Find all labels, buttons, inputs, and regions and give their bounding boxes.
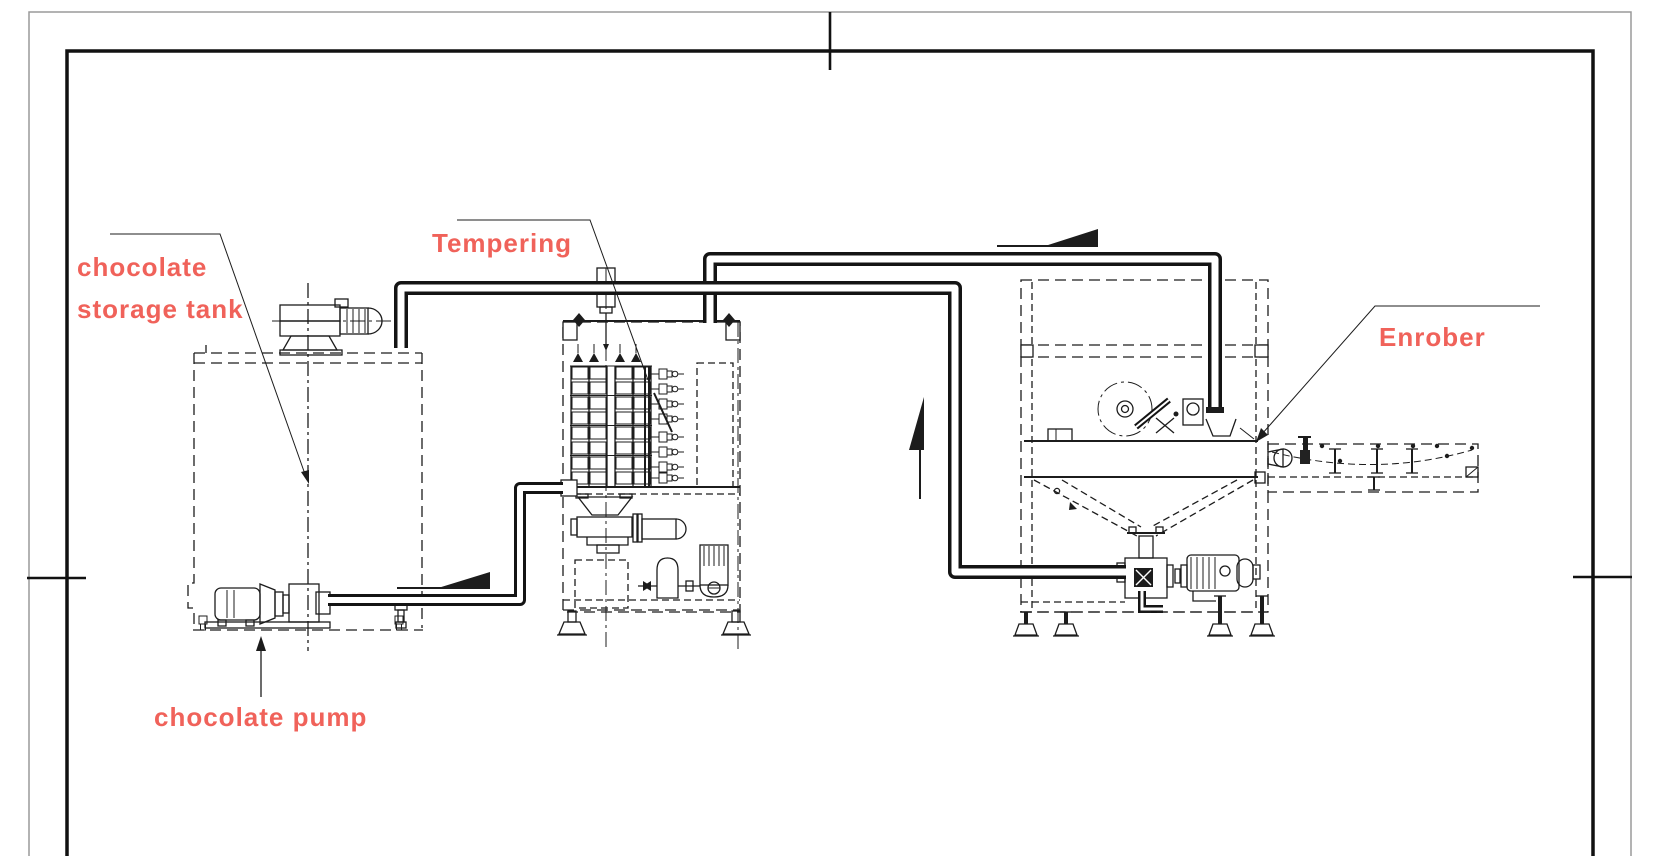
belt-dot bbox=[1376, 444, 1380, 448]
plate-cell bbox=[616, 382, 632, 394]
pipe-return-enrober-to-tank bbox=[401, 288, 1126, 572]
enrober-motor-ribs bbox=[1191, 557, 1215, 589]
labels: chocolate storage tank Tempering Enrober… bbox=[77, 228, 1486, 732]
discharge-pipe-cap bbox=[1206, 407, 1224, 413]
tank-agitator-motor bbox=[272, 299, 400, 355]
plate-cell bbox=[590, 442, 606, 454]
plate-cell bbox=[616, 457, 632, 469]
screw-motor-cap bbox=[676, 519, 686, 539]
drive-gearbox bbox=[1300, 450, 1310, 464]
pump-discharge-flange bbox=[316, 592, 330, 614]
band-corner-right bbox=[1255, 345, 1268, 357]
belt-left-fitting bbox=[1048, 429, 1072, 441]
valve-handwheel bbox=[672, 434, 678, 440]
flinger-circle bbox=[1098, 382, 1152, 436]
outfeed-conveyor-drawing bbox=[1255, 437, 1478, 492]
tempering-motor-base bbox=[700, 585, 728, 597]
plate-cell bbox=[616, 397, 632, 409]
flinger-hub-inner bbox=[1122, 406, 1129, 413]
inlet-triangle bbox=[573, 353, 583, 362]
leader-arrowhead bbox=[1256, 428, 1268, 442]
belt-dot bbox=[1411, 444, 1415, 448]
lower-bracket-step bbox=[597, 545, 619, 553]
tank-left-edge bbox=[188, 353, 194, 628]
tempering-feet bbox=[557, 611, 751, 635]
lower-bracket bbox=[587, 537, 628, 545]
label-enrober: Enrober bbox=[1379, 322, 1486, 352]
valve-handwheel bbox=[672, 464, 678, 470]
plate-cell bbox=[634, 382, 650, 394]
pipe-core bbox=[328, 488, 563, 600]
plate-cell bbox=[572, 382, 588, 394]
screw-cylinder bbox=[577, 517, 632, 537]
pump-coupling2 bbox=[283, 595, 289, 613]
enrober-hopper bbox=[1034, 480, 1253, 558]
conveyor-end bbox=[1466, 467, 1478, 477]
coupling-b bbox=[1175, 569, 1180, 583]
leader-arrowhead bbox=[256, 636, 266, 651]
pipe-tank-pump-to-tempering bbox=[328, 488, 563, 600]
plate-cell bbox=[590, 427, 606, 439]
trough-diag bbox=[1240, 428, 1254, 439]
foot-pad bbox=[1209, 624, 1231, 635]
plate-cell bbox=[634, 427, 650, 439]
coupling-a bbox=[1167, 565, 1173, 587]
valve-body bbox=[659, 462, 667, 472]
flow-arrow-tempering-to-enrober bbox=[997, 229, 1098, 246]
plate-cell bbox=[572, 457, 588, 469]
pump-drain-elbow-black bbox=[1142, 591, 1163, 609]
inlet-triangle bbox=[615, 353, 625, 362]
pipe-outline bbox=[401, 288, 1126, 572]
blower-trough bbox=[1206, 419, 1236, 436]
tempering-inner-dashed-box bbox=[697, 363, 733, 487]
plate-cell bbox=[634, 472, 650, 484]
plate-cell bbox=[572, 427, 588, 439]
plate-cell bbox=[616, 412, 632, 424]
conveyor-dots bbox=[1320, 444, 1474, 463]
belt-dot bbox=[1435, 444, 1439, 448]
tempering-lower-machinery bbox=[571, 494, 728, 608]
valve-body bbox=[659, 447, 667, 457]
plate-cell bbox=[572, 412, 588, 424]
coupling-c bbox=[1181, 565, 1187, 587]
motor-body-lower bbox=[280, 321, 340, 336]
pump-motor-body bbox=[215, 588, 260, 620]
flinger-rod-core bbox=[1136, 400, 1169, 427]
foot-pad bbox=[1251, 624, 1273, 635]
valve-handwheel bbox=[672, 371, 678, 377]
plate-cell bbox=[590, 472, 606, 484]
plate-cell bbox=[590, 457, 606, 469]
plate-cell bbox=[616, 427, 632, 439]
valve-bonnet bbox=[667, 475, 672, 481]
hopper-right-outer bbox=[1156, 480, 1253, 536]
hopper-right-inner bbox=[1151, 480, 1237, 527]
valve-body bbox=[659, 432, 667, 442]
plate-cell bbox=[634, 442, 650, 454]
scissor-pin bbox=[1174, 412, 1179, 417]
inlet-triangle bbox=[589, 353, 599, 362]
tempering-pump-dome bbox=[657, 558, 678, 598]
plate-cell bbox=[634, 367, 650, 379]
pump-head bbox=[289, 584, 319, 622]
belt-dot bbox=[1338, 459, 1342, 463]
plate-cell bbox=[616, 442, 632, 454]
plate-cell bbox=[616, 367, 632, 379]
flinger-hub-outer bbox=[1117, 401, 1133, 417]
tempering-motor-ribs bbox=[704, 546, 724, 566]
jack-screw bbox=[1064, 612, 1068, 624]
plate-cell bbox=[634, 412, 650, 424]
funnel-flange-l bbox=[576, 494, 588, 498]
belt-dot bbox=[1320, 444, 1324, 448]
enrober-drawing bbox=[1013, 280, 1275, 636]
plate-cell bbox=[590, 397, 606, 409]
end-diag bbox=[1466, 467, 1478, 477]
foot-pad bbox=[1055, 624, 1077, 635]
belt-dot bbox=[1470, 446, 1474, 450]
valve-bonnet bbox=[667, 464, 672, 470]
jack-screw bbox=[1024, 612, 1028, 624]
foot-pad bbox=[723, 622, 749, 634]
enrober-motor-body bbox=[1187, 555, 1239, 591]
valve-body bbox=[659, 384, 667, 394]
hopper-down-pipe bbox=[1139, 536, 1153, 558]
flinger-wheel bbox=[1098, 382, 1179, 436]
belt-dot bbox=[1445, 454, 1449, 458]
valve-bonnet bbox=[667, 386, 672, 392]
valve-handwheel bbox=[672, 475, 678, 481]
enrober-motor-port bbox=[1220, 566, 1230, 576]
valve-handwheel bbox=[672, 416, 678, 422]
band-corner-left bbox=[1021, 345, 1033, 357]
pipe-outline bbox=[328, 488, 563, 600]
valve-body bbox=[659, 473, 667, 483]
screw-motor bbox=[642, 519, 676, 539]
drive-nose bbox=[1268, 449, 1283, 467]
conveyor-supports bbox=[1329, 449, 1418, 490]
pump-coupling1 bbox=[275, 592, 283, 616]
enrober-pump bbox=[1117, 555, 1260, 609]
plate-cell bbox=[590, 367, 606, 379]
feed-funnel bbox=[578, 497, 632, 515]
plate-cell bbox=[590, 382, 606, 394]
foot-pad bbox=[1015, 624, 1037, 635]
label-chocolate-pump: chocolate pump bbox=[154, 702, 367, 732]
valve-bonnet bbox=[667, 449, 672, 455]
label-storage-tank-line1: chocolate bbox=[77, 252, 207, 282]
plate-cell bbox=[572, 442, 588, 454]
valve-fittings bbox=[650, 369, 684, 483]
skid-foot bbox=[199, 616, 207, 624]
valve-bonnet bbox=[667, 371, 672, 377]
lower-dashed-box bbox=[575, 560, 628, 608]
arrow-wedge-right bbox=[1045, 229, 1098, 246]
valve-handwheel bbox=[672, 449, 678, 455]
funnel-flange-r bbox=[620, 494, 632, 498]
motor-pedestal bbox=[283, 336, 337, 350]
motor-body-upper bbox=[280, 305, 340, 321]
leader-arrowhead bbox=[301, 470, 309, 484]
plate-cell bbox=[590, 412, 606, 424]
jack-screw bbox=[1218, 596, 1222, 624]
label-storage-tank-line2: storage tank bbox=[77, 294, 244, 324]
plate-cell bbox=[572, 397, 588, 409]
coupling-disc1 bbox=[633, 514, 637, 542]
hopper-left-outer bbox=[1034, 480, 1137, 536]
skid-foot-pad bbox=[397, 624, 402, 630]
process-diagram-canvas: chocolate storage tank Tempering Enrober… bbox=[0, 0, 1670, 856]
pump-baseplate bbox=[205, 622, 330, 628]
valve-bonnet bbox=[667, 434, 672, 440]
chocolate-pump-drawing bbox=[205, 584, 330, 628]
drive-post bbox=[1303, 437, 1308, 450]
tempering-plate-stack bbox=[570, 366, 652, 487]
plate-cell bbox=[572, 367, 588, 379]
arrow-wedge-up bbox=[909, 397, 924, 450]
corner-post-left bbox=[563, 322, 577, 340]
enrober-frame bbox=[1021, 280, 1268, 612]
border-frame-line bbox=[67, 51, 1593, 856]
label-tempering: Tempering bbox=[432, 228, 572, 258]
plate-cell bbox=[616, 472, 632, 484]
piping bbox=[328, 259, 1224, 600]
flow-arrow-tank-pump-discharge bbox=[397, 572, 490, 588]
jack-screw bbox=[1260, 596, 1264, 624]
tempering-inlet-box bbox=[561, 480, 577, 496]
sight-glass bbox=[1187, 403, 1199, 415]
flow-arrow-enrober-return-riser bbox=[909, 397, 924, 499]
valve-bonnet bbox=[667, 401, 672, 407]
motor-top-flange bbox=[335, 299, 348, 307]
foot-pad bbox=[559, 622, 585, 634]
valve-body bbox=[659, 369, 667, 379]
valve-handwheel bbox=[672, 386, 678, 392]
hopper-left-inner bbox=[1062, 480, 1141, 527]
pump-foot1 bbox=[218, 620, 226, 626]
screw-end-cap bbox=[571, 519, 577, 535]
leader-chocolate-pump bbox=[256, 636, 266, 697]
plate-cell bbox=[634, 397, 650, 409]
plate-cell bbox=[634, 457, 650, 469]
pump-foot2 bbox=[246, 620, 254, 626]
tempering-machine-drawing bbox=[557, 268, 751, 652]
pipe-core bbox=[401, 288, 1126, 572]
arrow-wedge-right bbox=[438, 572, 490, 588]
valve-handwheel bbox=[672, 401, 678, 407]
motor-bracket bbox=[1193, 591, 1216, 601]
pump-bell bbox=[260, 584, 275, 624]
